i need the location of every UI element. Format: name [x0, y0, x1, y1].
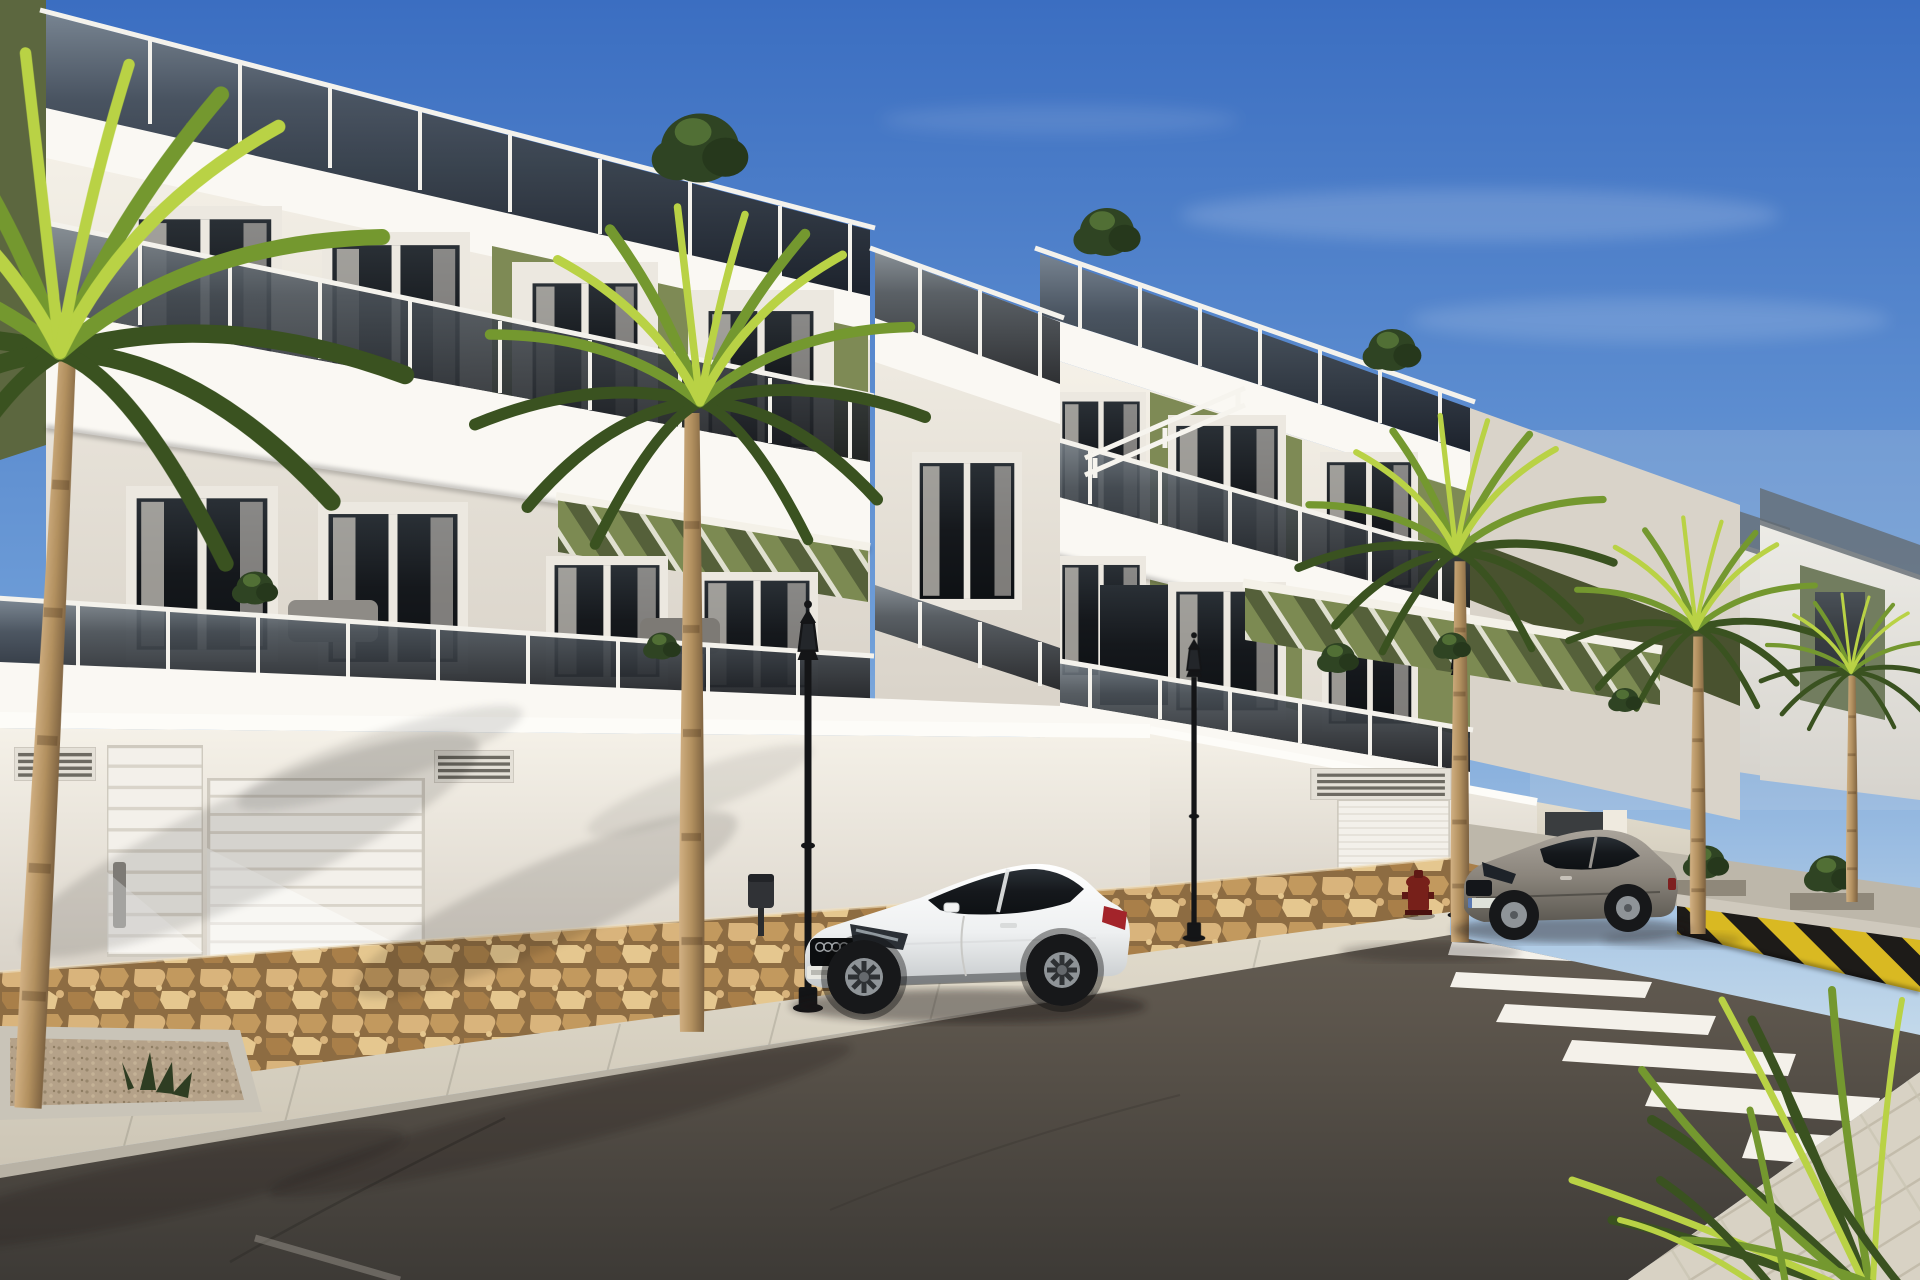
gray-car-grille [1466, 880, 1492, 896]
street-scene: Sunny street view 3D render: new-build w… [0, 0, 1920, 1280]
gray-car-taillight [1668, 878, 1676, 890]
gray-car-front-wheel [1489, 890, 1539, 940]
left-block-step-end [870, 248, 1064, 712]
white-car-front-wheel [824, 937, 904, 1017]
gray-car-rear-wheel [1604, 884, 1652, 932]
wall-vent-3 [1310, 768, 1452, 800]
white-car-mirror [944, 903, 959, 912]
white-car-rear-wheel [1023, 931, 1101, 1009]
